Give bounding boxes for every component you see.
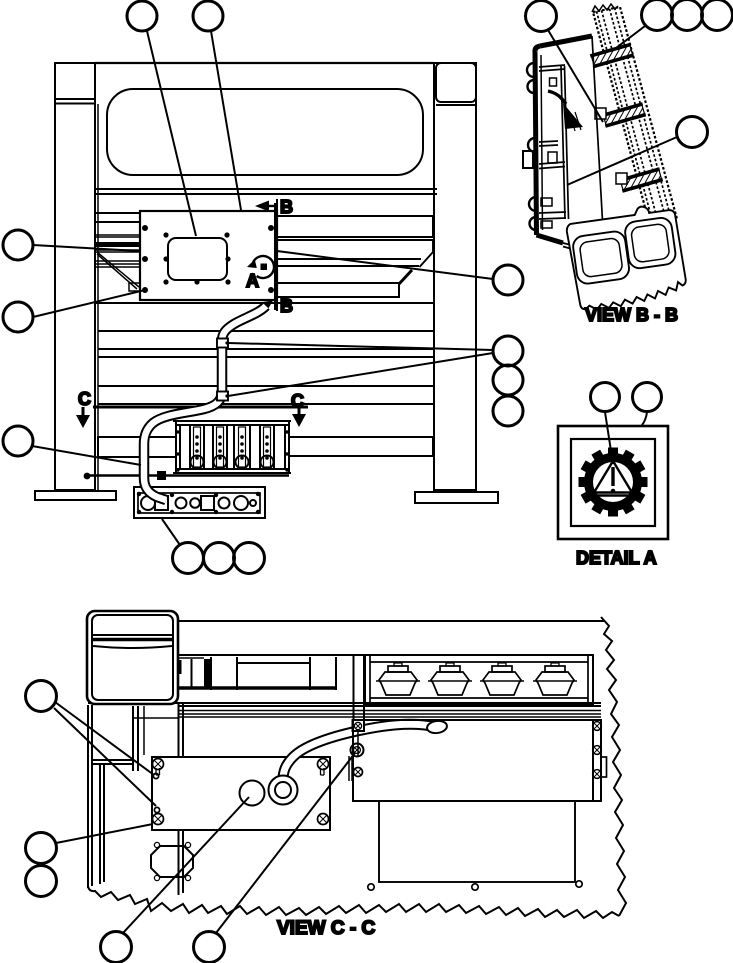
svg-text:VIEW B - B: VIEW B - B (585, 305, 678, 325)
svg-text:DETAIL A: DETAIL A (576, 548, 657, 568)
svg-text:B: B (280, 197, 293, 217)
svg-text:A: A (246, 271, 259, 291)
svg-text:B: B (280, 296, 293, 316)
svg-text:C: C (78, 389, 91, 409)
svg-text:VIEW C - C: VIEW C - C (277, 918, 375, 939)
